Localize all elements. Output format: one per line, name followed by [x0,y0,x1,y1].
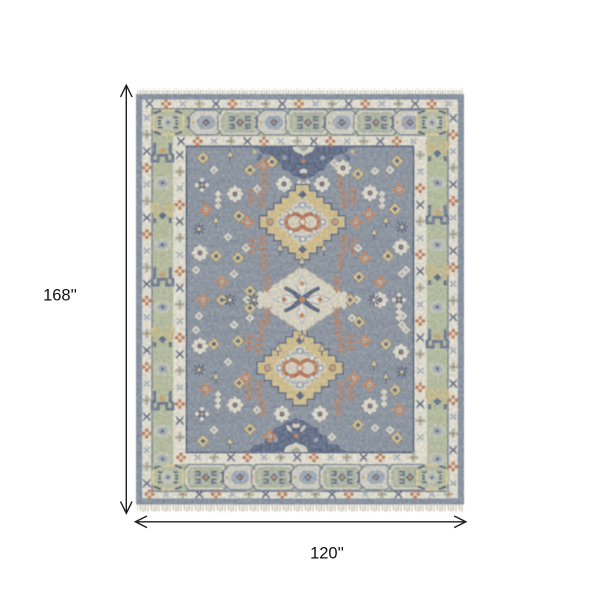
svg-text:120'': 120'' [310,545,344,563]
svg-text:168'': 168'' [43,287,77,305]
